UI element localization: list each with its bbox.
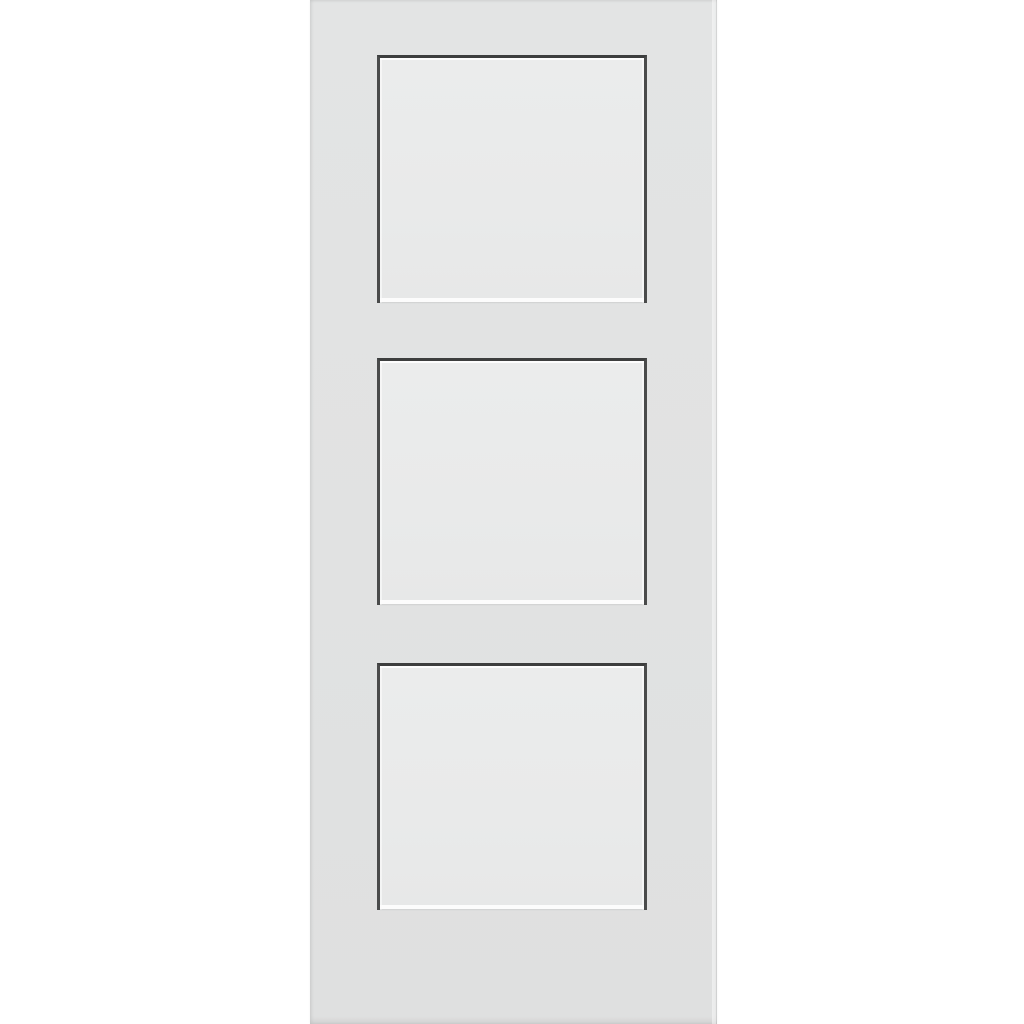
door-slab: [310, 0, 717, 1024]
door-panel-bottom: [377, 663, 647, 910]
door-panel-middle: [377, 358, 647, 605]
door-panel-top: [377, 55, 647, 303]
product-photo-background: [0, 0, 1024, 1024]
